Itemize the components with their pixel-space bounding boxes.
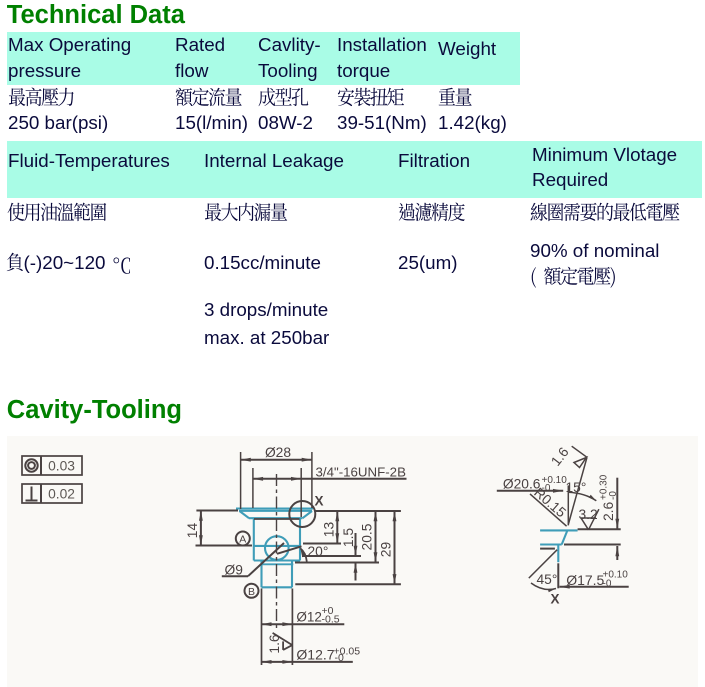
svg-text:1.6: 1.6 — [267, 634, 282, 654]
svg-text:2.6: 2.6 — [601, 501, 616, 521]
svg-text:45°: 45° — [537, 572, 558, 587]
svg-text:20°: 20° — [308, 544, 329, 559]
svg-text:1.6: 1.6 — [548, 444, 572, 469]
svg-text:3/4"-16UNF-2B: 3/4"-16UNF-2B — [316, 465, 407, 480]
svg-text:0.02: 0.02 — [48, 487, 75, 502]
svg-text:Ø12.7: Ø12.7 — [296, 647, 334, 663]
svg-text:0.03: 0.03 — [48, 459, 75, 474]
svg-text:Ø12: Ø12 — [296, 610, 322, 625]
svg-text:B: B — [248, 586, 255, 598]
svg-text:A: A — [239, 534, 246, 546]
svg-text:29: 29 — [379, 542, 394, 558]
svg-text:X: X — [315, 494, 324, 509]
svg-text:-0: -0 — [603, 579, 612, 590]
svg-text:20.5: 20.5 — [360, 523, 375, 550]
svg-text:-0.5: -0.5 — [322, 614, 340, 626]
svg-text:-0: -0 — [335, 652, 344, 664]
svg-text:-0: -0 — [608, 491, 619, 500]
svg-text:Ø28: Ø28 — [265, 445, 291, 460]
svg-text:Ø20.6: Ø20.6 — [503, 477, 541, 492]
svg-text:X: X — [551, 592, 560, 607]
svg-text:13: 13 — [322, 522, 337, 538]
svg-text:1.5: 1.5 — [341, 528, 356, 548]
svg-text:Ø17.5: Ø17.5 — [566, 572, 604, 588]
svg-text:14: 14 — [185, 523, 200, 539]
